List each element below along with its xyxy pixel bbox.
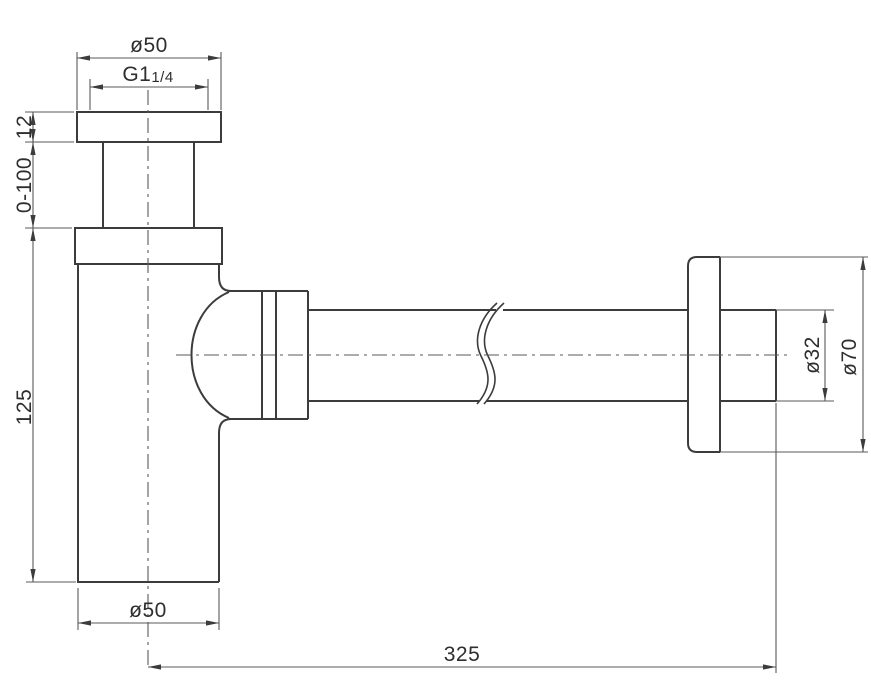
arrowhead bbox=[860, 257, 865, 270]
dim-overall-length: 325 bbox=[148, 403, 776, 673]
arrowhead bbox=[822, 388, 827, 401]
arrowhead bbox=[206, 620, 219, 625]
arrowhead bbox=[208, 55, 221, 60]
top-flange bbox=[77, 112, 221, 142]
arrowhead bbox=[822, 310, 827, 323]
dim-label-wall-flange-dia: ø70 bbox=[838, 338, 861, 376]
dim-label-top-flange-dia: ø50 bbox=[130, 34, 168, 57]
thread-prefix: G1 bbox=[122, 63, 151, 86]
body-right-lower bbox=[219, 419, 231, 582]
drawing-sheet: ø50 G11/4 12 0-100 125 ø50 bbox=[0, 0, 871, 698]
body-left-bottom bbox=[78, 264, 219, 582]
arrowhead bbox=[30, 215, 35, 228]
arrowhead bbox=[30, 569, 35, 582]
dim-label-adjust-range: 0-100 bbox=[13, 157, 36, 213]
arrowhead bbox=[860, 439, 865, 452]
dim-label-body-height: 125 bbox=[13, 389, 36, 426]
technical-drawing-page: { "drawing": { "component": "bottle-trap… bbox=[0, 0, 871, 698]
dim-label-flange-thickness: 12 bbox=[13, 115, 36, 139]
dim-label-overall-length: 325 bbox=[444, 643, 481, 666]
arrowhead bbox=[148, 664, 161, 669]
arrowhead bbox=[90, 84, 103, 89]
body-right-upper bbox=[219, 264, 231, 291]
arrowhead bbox=[78, 620, 91, 625]
arrowhead bbox=[195, 84, 208, 89]
dim-label-thread: G11/4 bbox=[122, 63, 173, 86]
dim-thread: G11/4 bbox=[90, 63, 208, 110]
centerlines bbox=[148, 90, 792, 670]
arrowhead bbox=[30, 142, 35, 155]
arrowhead bbox=[763, 664, 776, 669]
arrowhead bbox=[77, 55, 90, 60]
dim-left-stack: 12 0-100 125 bbox=[13, 112, 76, 582]
arrowhead bbox=[30, 228, 35, 241]
part-outline bbox=[75, 112, 776, 582]
dim-label-body-dia: ø50 bbox=[129, 599, 167, 622]
dim-label-pipe-dia: ø32 bbox=[801, 336, 824, 374]
bottle-trap-drawing: ø50 G11/4 12 0-100 125 ø50 bbox=[0, 0, 871, 698]
thread-fraction: 1/4 bbox=[151, 69, 173, 86]
